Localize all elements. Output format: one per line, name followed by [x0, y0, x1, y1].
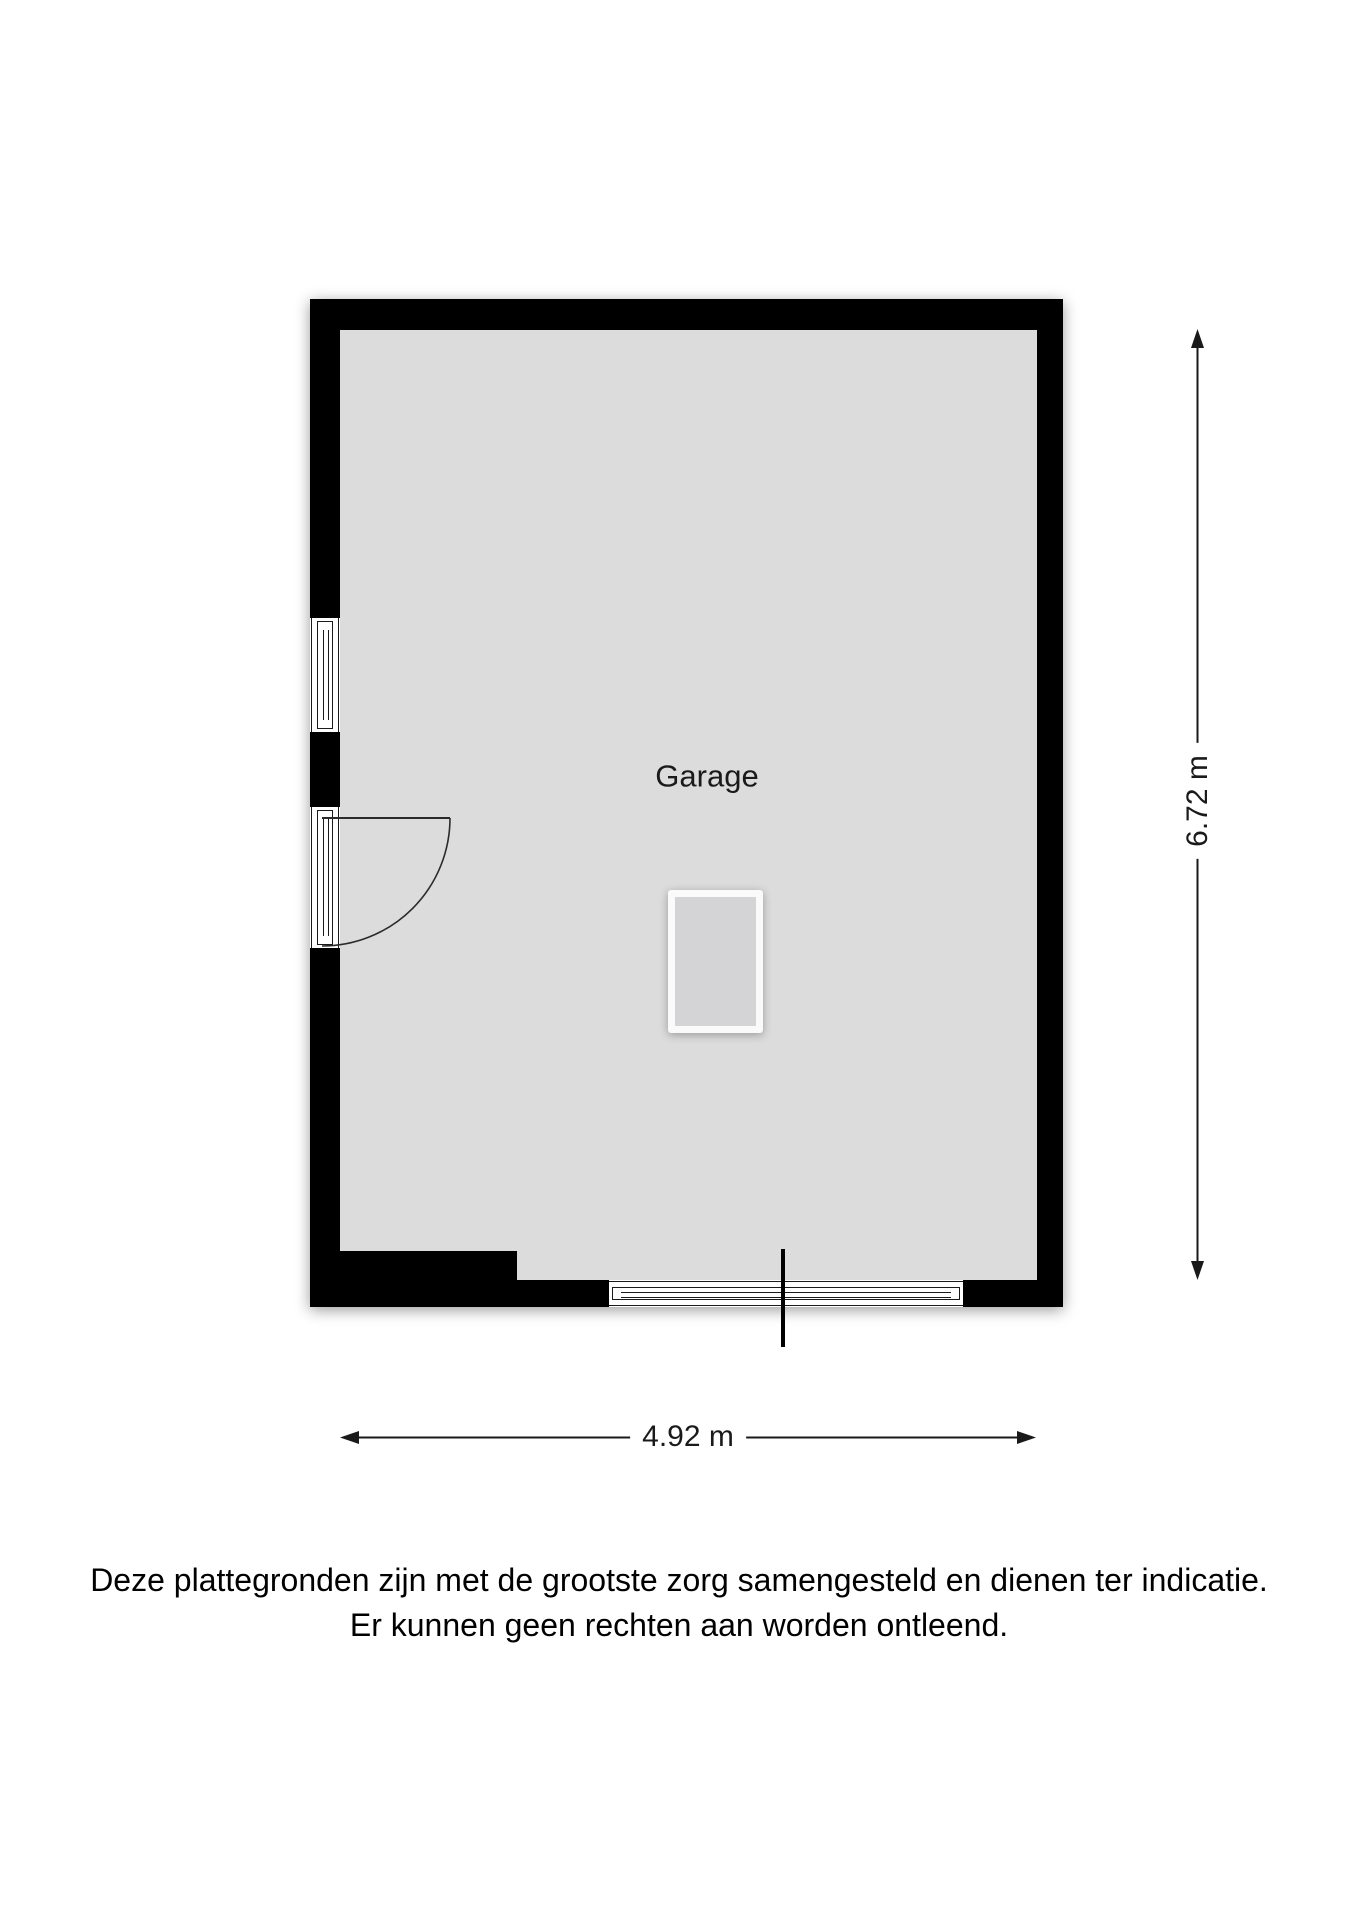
- arrow-right-icon: [1017, 1431, 1036, 1444]
- window-frame-line: [311, 618, 312, 732]
- disclaimer-text: Deze plattegronden zijn met de grootste …: [0, 1558, 1358, 1648]
- arrow-down-icon: [1191, 1261, 1204, 1280]
- bottom-wall-step: [338, 1251, 517, 1281]
- disclaimer-line-2: Er kunnen geen rechten aan worden ontlee…: [0, 1603, 1358, 1648]
- disclaimer-line-1: Deze plattegronden zijn met de grootste …: [0, 1558, 1358, 1603]
- door-opening: [310, 807, 340, 948]
- window-sash: [317, 621, 333, 729]
- arrow-up-icon: [1191, 329, 1204, 348]
- dimension-height-label: 6.72 m: [1179, 743, 1217, 859]
- window-frame-line: [338, 618, 339, 732]
- garage-door-frame-line: [609, 1281, 963, 1282]
- garage-door-frame-line: [609, 1305, 963, 1306]
- window-glazing: [323, 630, 329, 720]
- garage-door-panel-lines: [621, 1292, 951, 1298]
- door-frame-line: [338, 807, 339, 948]
- door-frame-line: [311, 807, 312, 948]
- window: [310, 618, 340, 732]
- garage-door: [609, 1280, 963, 1307]
- floor-plan-page: Garage 6.72 m 4.92 m Deze plattegronden …: [0, 0, 1358, 1920]
- door-glazing: [323, 819, 329, 936]
- garage-floor: [340, 330, 1037, 1280]
- dimension-width-label: 4.92 m: [630, 1418, 746, 1456]
- inspection-pit: [668, 890, 763, 1033]
- arrow-left-icon: [340, 1431, 359, 1444]
- garage-door-panel: [612, 1287, 960, 1300]
- room-label: Garage: [655, 761, 758, 792]
- door-leaf-closed: [317, 810, 333, 945]
